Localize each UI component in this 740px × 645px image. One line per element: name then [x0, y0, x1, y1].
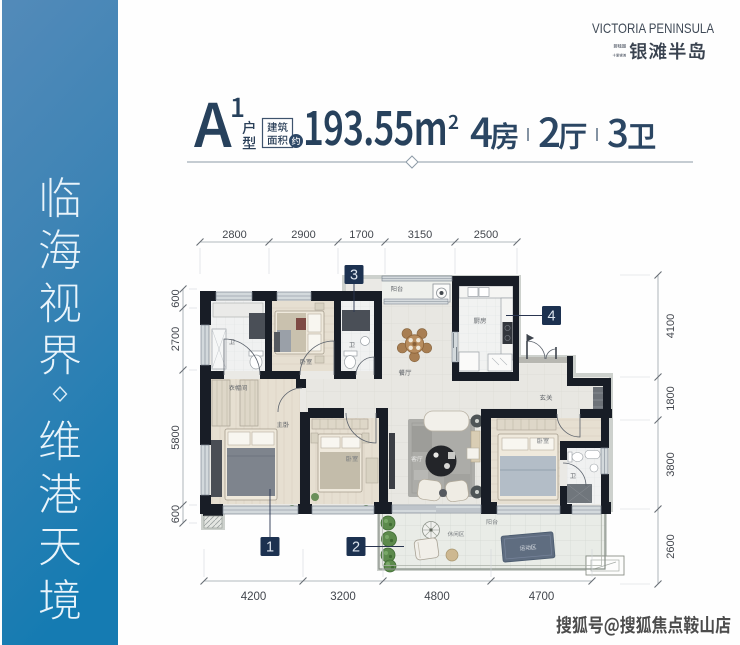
svg-text:5800: 5800 — [170, 425, 182, 449]
svg-text:4100: 4100 — [665, 314, 677, 338]
svg-text:1700: 1700 — [349, 229, 373, 241]
svg-text:3800: 3800 — [665, 452, 677, 476]
svg-text:2700: 2700 — [170, 327, 182, 351]
svg-text:3: 3 — [350, 268, 358, 284]
svg-text:2600: 2600 — [665, 534, 677, 558]
svg-text:2: 2 — [352, 540, 360, 556]
svg-text:4: 4 — [547, 309, 555, 325]
svg-text:600: 600 — [170, 289, 182, 307]
svg-text:3200: 3200 — [330, 591, 356, 603]
svg-text:4800: 4800 — [424, 591, 450, 603]
svg-text:2500: 2500 — [474, 229, 498, 241]
svg-text:4200: 4200 — [241, 591, 267, 603]
svg-text:2900: 2900 — [291, 229, 315, 241]
svg-text:3150: 3150 — [408, 229, 432, 241]
svg-text:2800: 2800 — [222, 229, 246, 241]
svg-text:1: 1 — [266, 540, 274, 556]
svg-text:4700: 4700 — [529, 591, 555, 603]
svg-text:600: 600 — [170, 505, 182, 523]
svg-text:1800: 1800 — [665, 386, 677, 410]
svg-text:VICTORIA PENINSULA: VICTORIA PENINSULA — [592, 20, 715, 36]
